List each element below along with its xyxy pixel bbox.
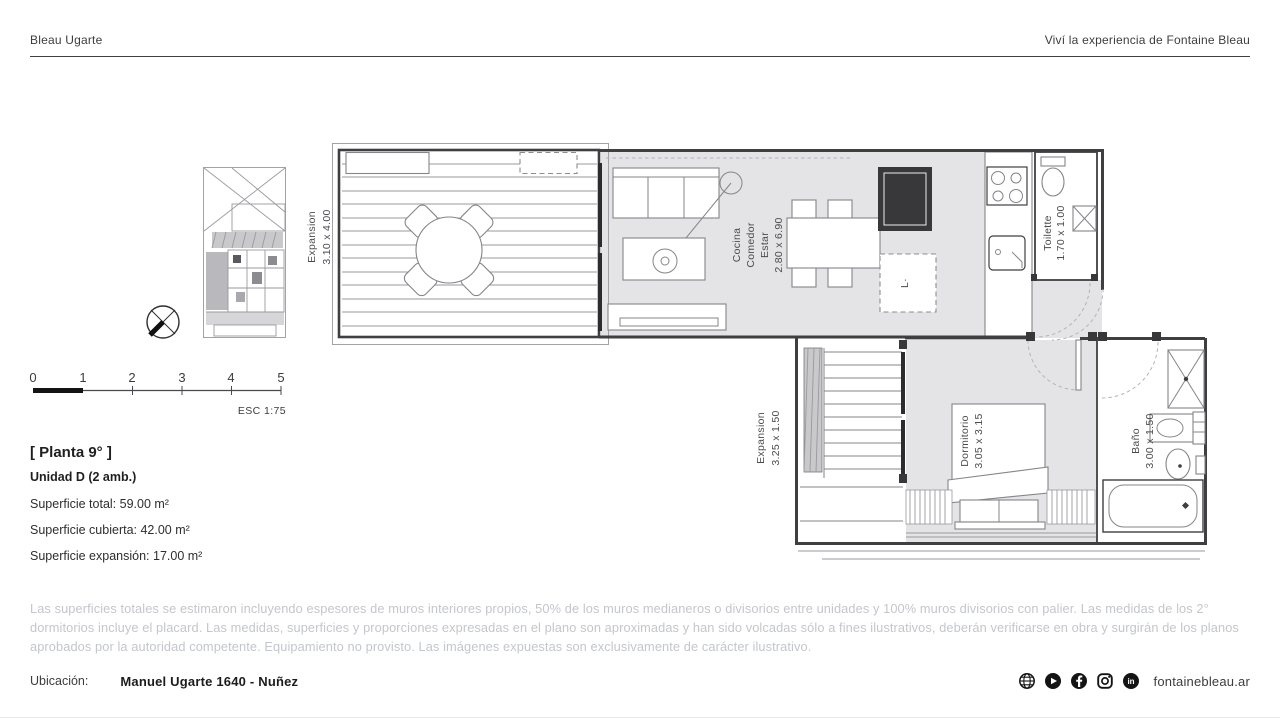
label-expansion-upper: Expansion <box>306 211 318 263</box>
label-living-2: Comedor <box>745 222 757 267</box>
label-toilette-dims: 1.70 x 1.00 <box>1055 205 1067 260</box>
floorplan-page: Bleau Ugarte Viví la experiencia de Font… <box>0 0 1280 720</box>
floor-plan: L· <box>300 128 1220 573</box>
key-plan <box>138 160 295 352</box>
label-bedroom: Dormitorio <box>959 415 971 466</box>
terrace-upper <box>333 144 609 345</box>
scale-bar: 0 1 2 3 4 5 ESC 1:75 <box>26 366 292 420</box>
scale-tick-5: 5 <box>277 370 284 385</box>
bathtub <box>1103 480 1203 532</box>
stairs <box>824 348 902 478</box>
label-bedroom-dims: 3.05 x 3.15 <box>973 413 985 468</box>
globe-icon[interactable] <box>1018 672 1036 690</box>
label-bathroom-dims: 3.00 x 1.50 <box>1144 413 1156 468</box>
youtube-icon[interactable] <box>1044 672 1062 690</box>
svg-text:in: in <box>1127 677 1134 686</box>
label-expansion-lower-dims: 3.25 x 1.50 <box>770 410 782 465</box>
location-address: Manuel Ugarte 1640 - Nuñez <box>120 674 298 689</box>
north-compass-icon <box>147 306 179 338</box>
washer-label: L· <box>899 278 911 288</box>
unit-title: Unidad D (2 amb.) <box>30 470 202 484</box>
terrace-lower <box>800 348 903 521</box>
scale-tick-2: 2 <box>128 370 135 385</box>
cooktop <box>987 167 1027 205</box>
page-bottom-divider <box>0 717 1280 718</box>
social-links: in fontainebleau.ar <box>1018 672 1250 690</box>
label-expansion-lower: Expansion <box>755 412 767 464</box>
label-living-1: Cocina <box>731 228 743 262</box>
scale-tick-0: 0 <box>29 370 36 385</box>
kitchen-sink <box>989 236 1025 270</box>
header-tagline: Viví la experiencia de Fontaine Bleau <box>1045 33 1250 47</box>
footer: Ubicación: Manuel Ugarte 1640 - Nuñez <box>30 668 1250 694</box>
area-expansion: Superficie expansión: 17.00 m² <box>30 549 202 563</box>
label-expansion-upper-dims: 3.10 x 4.00 <box>321 209 333 264</box>
floor-title: [ Planta 9° ] <box>30 444 202 461</box>
sofa <box>613 168 719 218</box>
linkedin-icon[interactable]: in <box>1122 672 1140 690</box>
brand-title: Bleau Ugarte <box>30 33 102 47</box>
disclaimer-text: Las superficies totales se estimaron inc… <box>30 599 1252 657</box>
label-living-3: Estar <box>759 232 771 258</box>
scale-tick-1: 1 <box>79 370 86 385</box>
area-covered: Superficie cubierta: 42.00 m² <box>30 523 202 537</box>
vanity-sink <box>1150 412 1205 444</box>
facebook-icon[interactable] <box>1070 672 1088 690</box>
instagram-icon[interactable] <box>1096 672 1114 690</box>
shower <box>1168 350 1204 408</box>
label-toilette: Toilette <box>1042 215 1054 251</box>
website-text[interactable]: fontainebleau.ar <box>1154 674 1250 689</box>
header: Bleau Ugarte Viví la experiencia de Font… <box>30 0 1250 57</box>
location-label: Ubicación: <box>30 674 88 688</box>
key-plan-building <box>204 168 286 338</box>
label-living-dims: 2.80 x 6.90 <box>773 217 785 272</box>
scale-tick-3: 3 <box>178 370 185 385</box>
area-total: Superficie total: 59.00 m² <box>30 497 202 511</box>
bidet <box>1166 449 1205 479</box>
scale-label: ESC 1:75 <box>238 405 286 417</box>
unit-info: [ Planta 9° ] Unidad D (2 amb.) Superfic… <box>30 444 202 575</box>
scale-tick-4: 4 <box>227 370 234 385</box>
terrace-table <box>402 203 496 298</box>
label-bathroom: Baño <box>1130 428 1142 454</box>
location: Ubicación: Manuel Ugarte 1640 - Nuñez <box>30 674 298 689</box>
